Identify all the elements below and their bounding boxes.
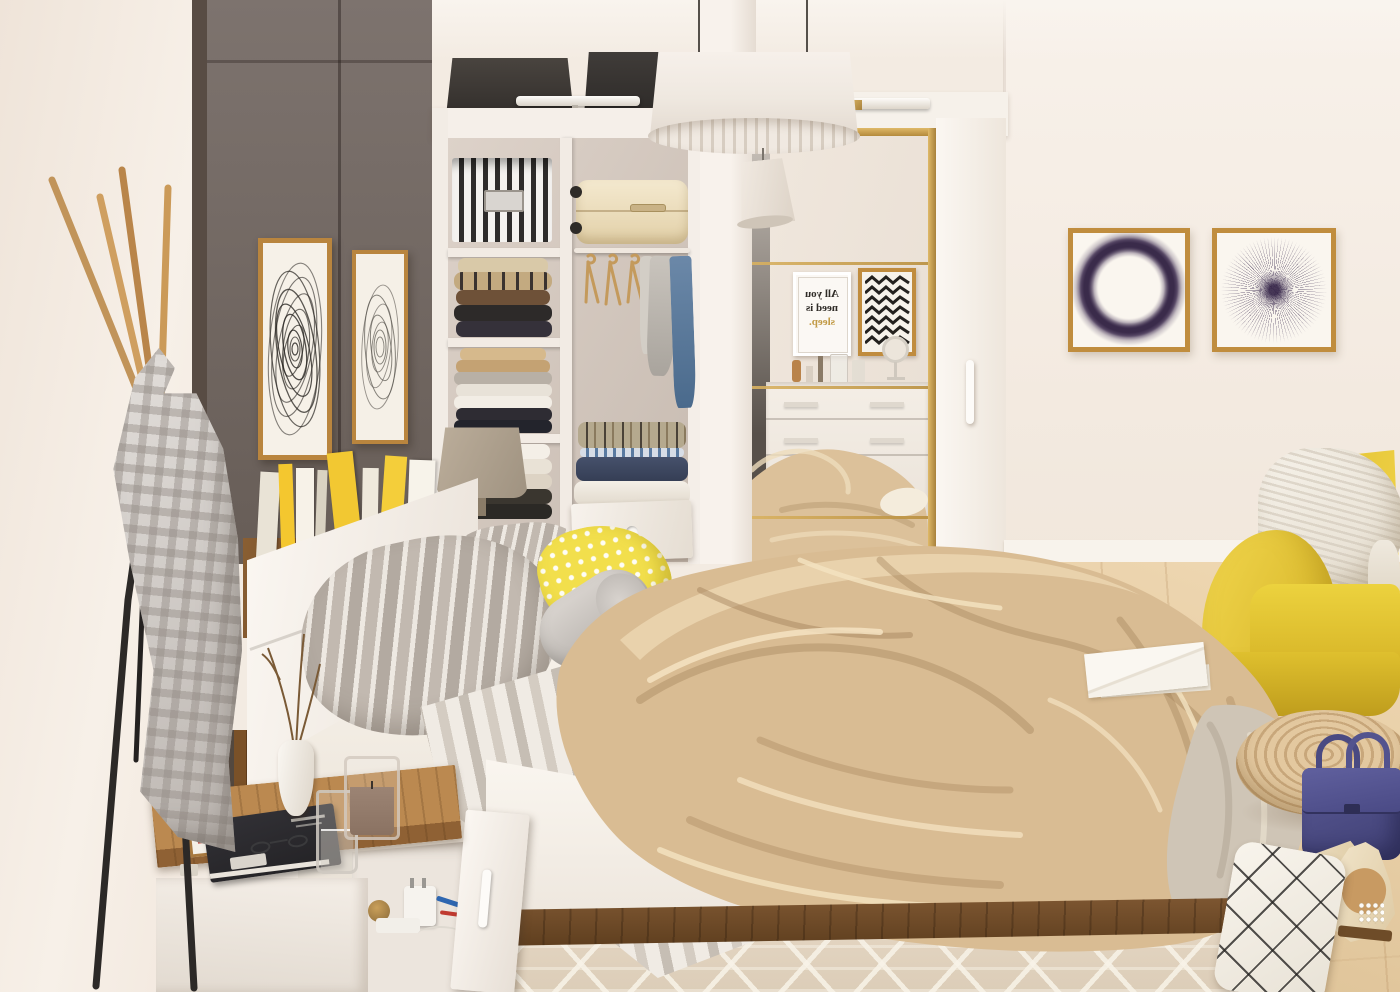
bedroom-scene: All you need is sleep. xyxy=(0,0,1400,992)
small-lamp-cable xyxy=(762,148,764,162)
pendant-lamp-large-diffuser xyxy=(648,118,860,154)
lamp-cable-2 xyxy=(806,0,808,54)
lamp-cable-1 xyxy=(698,0,700,58)
